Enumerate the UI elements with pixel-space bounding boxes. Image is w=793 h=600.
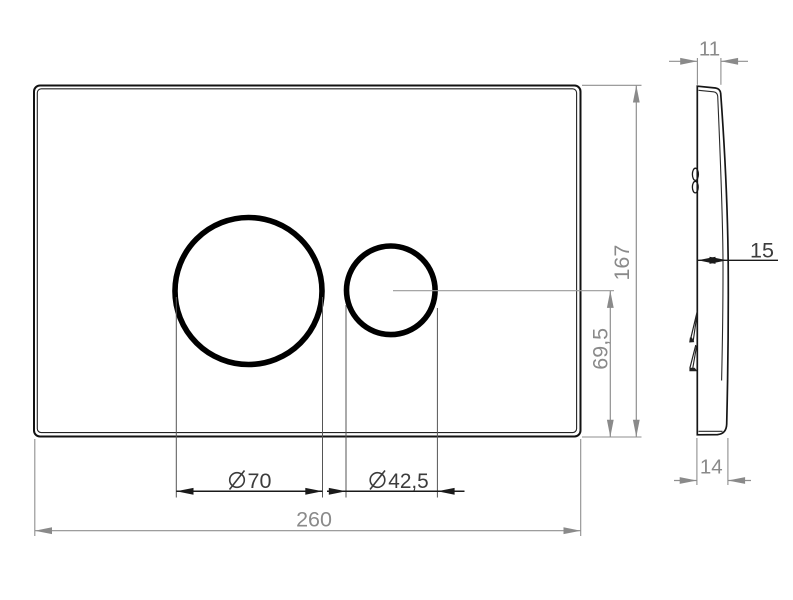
svg-text:69,5: 69,5: [589, 328, 613, 370]
svg-text:15: 15: [750, 239, 774, 263]
svg-text:70: 70: [248, 469, 272, 493]
svg-text:167: 167: [610, 245, 634, 281]
svg-text:14: 14: [700, 456, 723, 479]
svg-text:11: 11: [699, 37, 720, 60]
svg-text:42,5: 42,5: [388, 470, 428, 493]
svg-text:260: 260: [296, 508, 332, 532]
